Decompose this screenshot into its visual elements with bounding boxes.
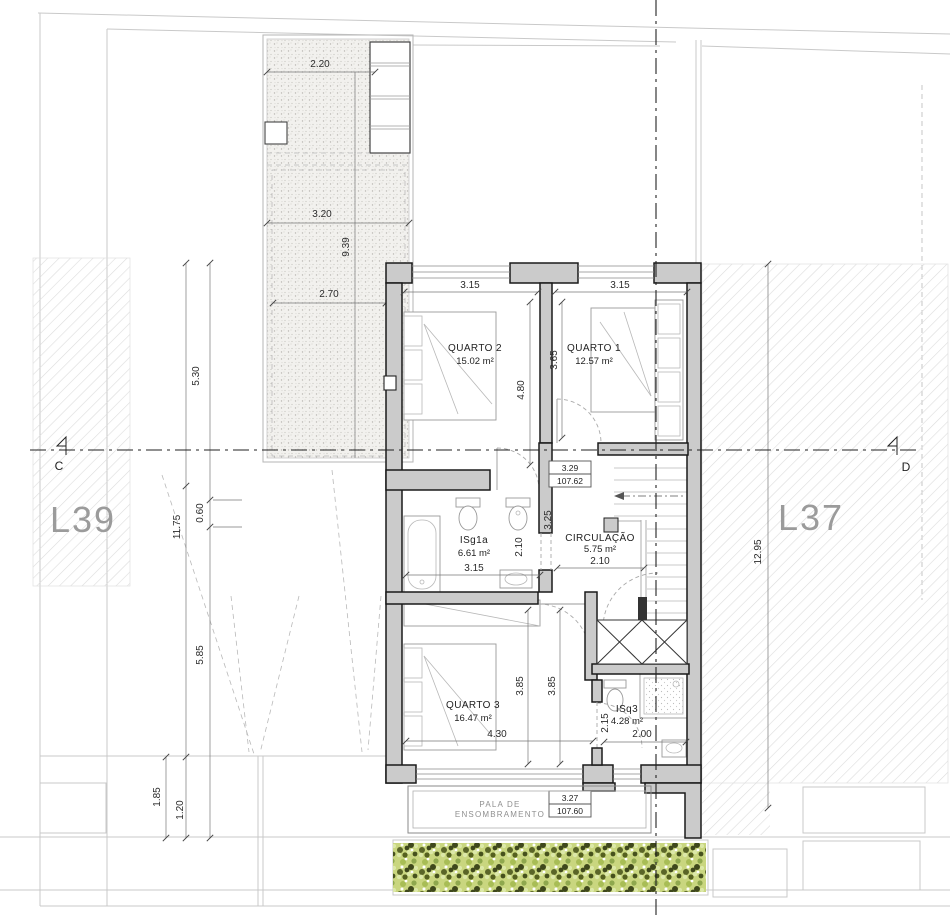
dim-q3-depth-b: 3.85 [547,676,558,696]
dim-isg-width: 3.15 [464,563,484,574]
dim-q2-width: 3.15 [460,280,480,291]
shower-icon [640,674,687,718]
dim-q3-depth-a: 3.85 [515,676,526,696]
stair-newel [604,518,618,532]
dim-q2-depth: 4.80 [516,380,527,400]
dim-left-530: 5.30 [191,366,202,386]
dim-q1-depth: 3.65 [549,350,560,370]
pala-ensombramento: PALA DE ENSOMBRAMENTO [408,786,651,833]
dim-right-1295: 12.95 [753,539,764,564]
lot-l37-label: L37 [778,497,844,538]
hedge [393,840,708,895]
toilet-isg1a-icon [456,498,480,530]
room-area-isg1a: 6.61 m² [458,548,490,559]
sink-isg1a-icon [500,570,532,588]
room-label-circulacao: CIRCULAÇÃO [565,531,635,544]
room-area-isq3: 4.28 m² [611,716,643,727]
section-letter-d: D [902,460,911,474]
dim-circ-width: 2.10 [590,556,610,567]
stairs [604,468,687,627]
level-height-lower: 3.27 [562,793,579,803]
dim-left-1175: 11.75 [172,514,183,539]
floor-plan-page: L39 L37 2.20 3.20 9.39 2.70 [0,0,950,917]
room-area-quarto1: 12.57 m² [575,356,613,367]
dim-terrace-height: 9.39 [341,237,352,257]
room-label-quarto3: QUARTO 3 [446,700,500,711]
dim-terrace-bottom: 2.70 [319,289,339,300]
room-area-circulacao: 5.75 m² [584,544,616,555]
section-letter-c: C [55,459,64,473]
dim-hall-325: 3.25 [543,510,554,530]
dim-left-185: 1.85 [152,787,163,807]
room-label-isq3: ISq3 [616,704,638,715]
level-elevation-lower: 107.60 [557,806,583,816]
dim-left-120: 1.20 [175,800,186,820]
level-elevation-mid: 107.62 [557,476,583,486]
dim-left-060: 0.60 [195,503,206,523]
stair-void [597,620,687,664]
room-area-quarto2: 15.02 m² [456,356,494,367]
lot-l39: L39 [33,258,130,586]
dim-isq3-depth: 2.15 [600,713,611,733]
room-label-quarto2: QUARTO 2 [448,343,502,354]
dim-isq3-width: 2.00 [632,729,652,740]
terrace-box [265,122,287,144]
elevation-marker-lower: 3.27 107.60 [549,791,591,817]
bed-quarto1-icon [591,300,683,440]
stair-direction-arrow [614,492,624,500]
lot-l39-label: L39 [50,499,116,540]
level-height-mid: 3.29 [562,463,579,473]
window-marker [384,376,396,390]
pergola-louvers [370,42,410,153]
bed-quarto3-icon [404,644,496,750]
elevation-marker-mid: 3.29 107.62 [549,461,591,487]
dim-terrace-top: 2.20 [310,59,330,70]
lot-l37: L37 [702,264,948,835]
dim-left-585: 5.85 [195,645,206,665]
room-label-quarto1: QUARTO 1 [567,343,621,354]
sink-isq3-icon [662,740,686,757]
dim-q1-width: 3.15 [610,280,630,291]
room-area-quarto3: 16.47 m² [454,713,492,724]
dim-isg-depth: 2.10 [514,537,525,557]
pala-label-line2: ENSOMBRAMENTO [455,810,545,819]
bathtub-icon [404,516,440,593]
room-label-isg1a: ISg1a [460,535,488,546]
dim-q3-width: 4.30 [487,729,507,740]
floor-plan-canvas: L39 L37 2.20 3.20 9.39 2.70 [0,0,950,917]
bidet-icon [506,498,530,530]
pala-label-line1: PALA DE [479,800,520,809]
dim-terrace-mid: 3.20 [312,209,332,220]
